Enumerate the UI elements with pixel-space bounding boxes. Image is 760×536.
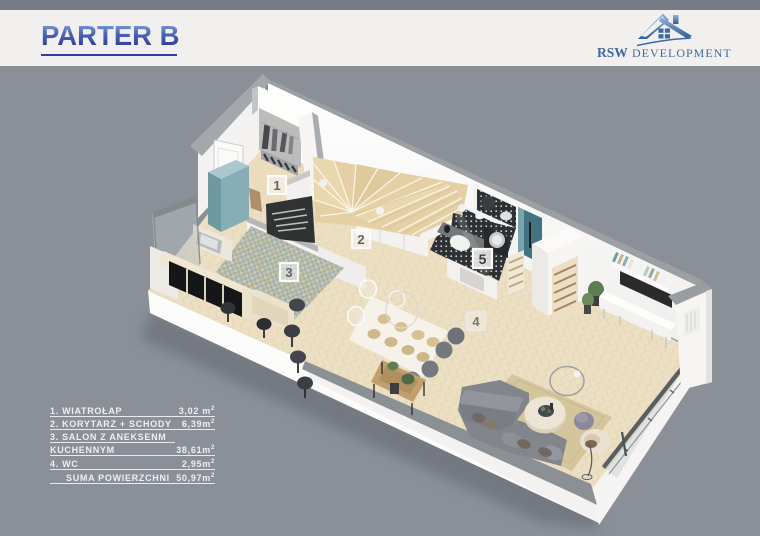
svg-text:5: 5: [479, 251, 487, 267]
svg-text:1: 1: [273, 178, 280, 193]
svg-text:2: 2: [357, 232, 364, 247]
svg-text:4: 4: [472, 314, 480, 329]
svg-text:3: 3: [285, 265, 292, 280]
